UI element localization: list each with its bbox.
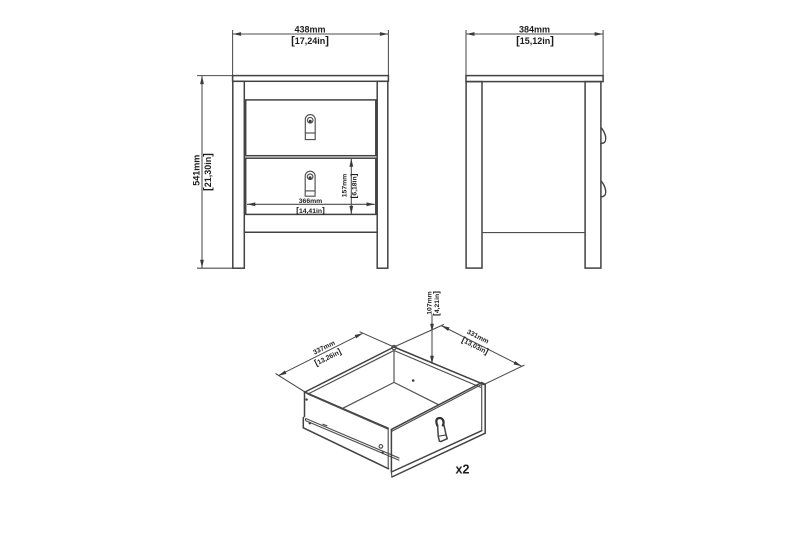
- svg-text:x2: x2: [456, 463, 470, 477]
- svg-text:541mm: 541mm: [192, 155, 202, 186]
- svg-text:[17,24in]: [17,24in]: [291, 35, 329, 47]
- svg-text:366mm: 366mm: [299, 198, 322, 205]
- svg-text:[21,30in]: [21,30in]: [202, 153, 214, 191]
- svg-text:[15,12in]: [15,12in]: [516, 35, 554, 47]
- svg-text:384mm: 384mm: [519, 25, 550, 35]
- svg-text:438mm: 438mm: [294, 25, 325, 35]
